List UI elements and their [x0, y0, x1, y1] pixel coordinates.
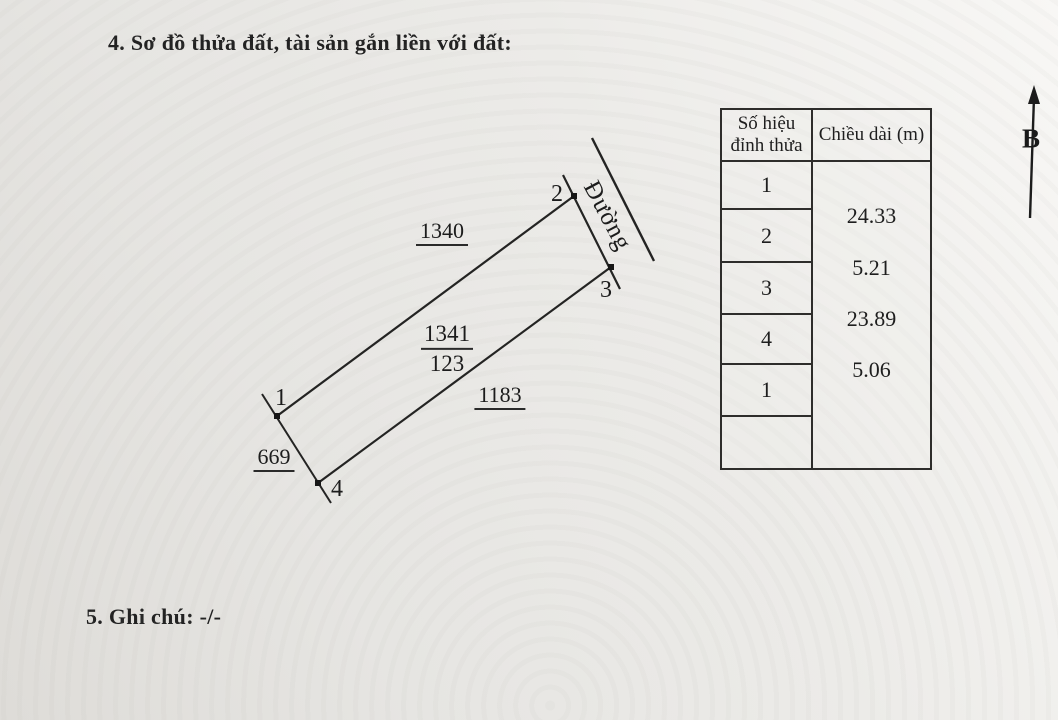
vertex-marker-2: [571, 193, 577, 199]
length-value-3-4: 23.89: [813, 308, 930, 330]
vertex-label-1: 1: [275, 386, 287, 410]
adjacent-parcel-right: 1183: [474, 384, 525, 410]
length-values: 24.33 5.21 23.89 5.06: [813, 162, 930, 468]
vertex-cell-empty: [722, 417, 811, 468]
adjacent-parcel-top: 1340: [416, 220, 468, 246]
north-arrow-head: [1028, 85, 1040, 104]
adjacent-parcel-left: 669: [254, 446, 295, 472]
vertex-cell-2: 2: [722, 210, 811, 263]
vertex-label-4: 4: [331, 477, 343, 501]
vertex-cell-3: 3: [722, 263, 811, 315]
vertex-number-column: Số hiệu đỉnh thửa 1 2 3 4 1: [722, 110, 813, 468]
north-label: B: [1022, 124, 1040, 155]
vertex-marker-4: [315, 480, 321, 486]
length-column: Chiều dài (m) 24.33 5.21 23.89 5.06: [813, 110, 930, 468]
vertex-cell-4: 4: [722, 315, 811, 365]
table-header-length: Chiều dài (m): [813, 110, 930, 162]
parcel-number: 1341: [421, 322, 473, 350]
table-header-vertex: Số hiệu đỉnh thửa: [722, 110, 811, 162]
certificate-scan-page: 4. Sơ đồ thửa đất, tài sản gắn liền với …: [0, 0, 1058, 720]
north-arrow-line: [1030, 97, 1034, 218]
length-value-4-1: 5.06: [813, 359, 930, 381]
length-value-1-2: 24.33: [813, 205, 930, 227]
vertex-marker-3: [608, 264, 614, 270]
vertex-cell-1: 1: [722, 162, 811, 210]
length-value-2-3: 5.21: [813, 257, 930, 279]
parcel-number-fraction: 1341 123: [421, 322, 473, 376]
vertex-cell-5: 1: [722, 365, 811, 417]
parcel-sub-number: 123: [430, 350, 465, 376]
vertex-label-2: 2: [551, 182, 563, 206]
vertex-marker-1: [274, 413, 280, 419]
lengths-table: Số hiệu đỉnh thửa 1 2 3 4 1 Chiều dài (m…: [720, 108, 932, 470]
vertex-label-3: 3: [600, 278, 612, 302]
